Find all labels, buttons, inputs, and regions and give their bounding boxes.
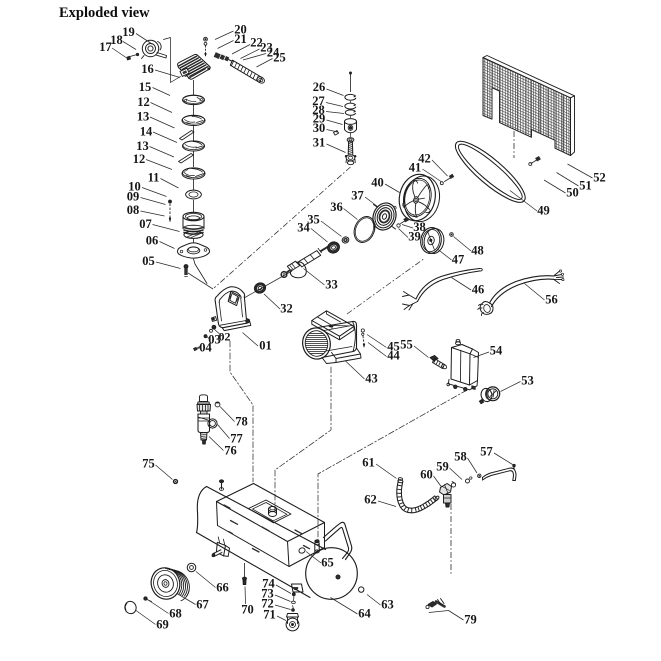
svg-text:09: 09 (127, 190, 140, 204)
svg-text:68: 68 (169, 607, 182, 621)
svg-text:75: 75 (142, 457, 155, 471)
svg-text:70: 70 (241, 603, 254, 617)
svg-text:46: 46 (472, 283, 485, 297)
svg-text:32: 32 (280, 302, 293, 316)
svg-text:65: 65 (321, 556, 334, 570)
svg-text:79: 79 (464, 613, 477, 627)
svg-text:42: 42 (418, 152, 431, 166)
svg-text:76: 76 (224, 444, 237, 458)
svg-text:66: 66 (216, 581, 229, 595)
svg-text:78: 78 (235, 415, 248, 429)
svg-text:53: 53 (521, 374, 534, 388)
svg-text:06: 06 (146, 234, 159, 248)
svg-text:43: 43 (365, 372, 378, 386)
svg-text:45: 45 (387, 340, 400, 354)
svg-text:54: 54 (490, 344, 503, 358)
svg-text:39: 39 (408, 230, 421, 244)
svg-text:21: 21 (234, 32, 247, 46)
svg-text:40: 40 (371, 176, 384, 190)
svg-text:60: 60 (420, 468, 433, 482)
svg-text:17: 17 (99, 40, 112, 54)
svg-text:19: 19 (122, 25, 135, 39)
svg-text:04: 04 (199, 341, 212, 355)
svg-text:35: 35 (307, 213, 320, 227)
svg-text:16: 16 (141, 62, 154, 76)
svg-text:50: 50 (566, 186, 579, 200)
svg-text:57: 57 (480, 445, 493, 459)
svg-text:01: 01 (259, 339, 272, 353)
svg-text:63: 63 (381, 598, 394, 612)
svg-text:62: 62 (364, 493, 377, 507)
svg-text:31: 31 (313, 136, 326, 150)
svg-text:36: 36 (330, 200, 343, 214)
svg-text:13: 13 (136, 139, 149, 153)
svg-text:13: 13 (137, 110, 150, 124)
svg-text:74: 74 (262, 577, 275, 591)
svg-text:12: 12 (137, 95, 150, 109)
svg-text:64: 64 (358, 607, 371, 621)
svg-text:51: 51 (579, 179, 592, 193)
svg-text:26: 26 (313, 80, 326, 94)
svg-text:30: 30 (313, 121, 326, 135)
svg-text:25: 25 (273, 51, 286, 65)
svg-text:05: 05 (142, 254, 155, 268)
svg-text:18: 18 (110, 33, 123, 47)
svg-text:Exploded view: Exploded view (59, 5, 150, 21)
svg-text:37: 37 (351, 189, 364, 203)
svg-text:55: 55 (400, 338, 413, 352)
svg-text:58: 58 (454, 450, 467, 464)
svg-text:69: 69 (156, 618, 169, 632)
svg-text:07: 07 (139, 217, 152, 231)
svg-text:14: 14 (140, 125, 153, 139)
svg-text:49: 49 (537, 204, 550, 218)
svg-text:33: 33 (325, 278, 338, 292)
svg-text:67: 67 (196, 598, 209, 612)
svg-text:15: 15 (139, 80, 152, 94)
svg-text:48: 48 (471, 244, 484, 258)
svg-text:11: 11 (148, 171, 160, 185)
svg-text:47: 47 (452, 253, 465, 267)
svg-text:12: 12 (133, 152, 146, 166)
svg-text:56: 56 (545, 293, 558, 307)
svg-text:59: 59 (436, 460, 449, 474)
svg-text:08: 08 (127, 203, 140, 217)
svg-text:61: 61 (362, 456, 375, 470)
svg-text:52: 52 (593, 171, 606, 185)
